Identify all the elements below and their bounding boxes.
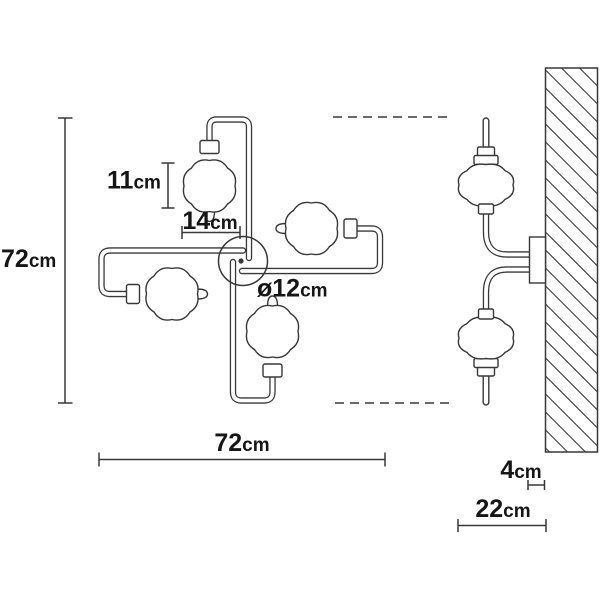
height-dimension-label: 72cm xyxy=(1,245,56,273)
canopy-center-dot xyxy=(238,258,243,263)
wall-hatch-line xyxy=(546,430,568,452)
front-view xyxy=(102,120,381,401)
lamp-dimension-drawing: 72cm 72cm 11cm 14cm ø12cm 4cm 22cm xyxy=(0,0,600,600)
side-arm-lower xyxy=(486,270,530,310)
bulb-right xyxy=(276,202,357,254)
dimension-canopy-diameter: ø12cm xyxy=(257,275,328,303)
dimension-projection: 22cm xyxy=(458,495,546,532)
wall-outline xyxy=(546,68,598,452)
technical-drawing-page: 72cm 72cm 11cm 14cm ø12cm 4cm 22cm xyxy=(0,0,600,600)
arm-offset-dimension-label: 14cm xyxy=(182,207,237,235)
side-bulb-lower xyxy=(458,309,513,405)
projection-dimension-label: 22cm xyxy=(475,495,530,523)
dimension-plate-depth: 4cm xyxy=(500,456,544,490)
wall-hatch-line xyxy=(580,68,598,86)
wall-mount-plate xyxy=(530,237,546,283)
side-view xyxy=(458,68,597,452)
dimension-overall-width: 72cm xyxy=(99,429,385,467)
wall-section xyxy=(546,68,598,452)
dimension-overall-height: 72cm xyxy=(1,118,73,403)
dimension-bulb-height: 11cm xyxy=(107,163,175,208)
bulb-bottom xyxy=(246,296,298,377)
side-arm-upper xyxy=(486,214,530,255)
bulb-left xyxy=(127,268,208,320)
width-dimension-label: 72cm xyxy=(214,429,269,457)
wall-hatch-line xyxy=(562,68,598,104)
bulb-height-dimension-label: 11cm xyxy=(107,167,161,195)
plate-depth-dimension-label: 4cm xyxy=(500,456,541,484)
wall-hatch-line xyxy=(546,412,586,452)
canopy-diameter-label: ø12cm xyxy=(257,275,328,303)
side-bulb-upper xyxy=(458,118,513,214)
